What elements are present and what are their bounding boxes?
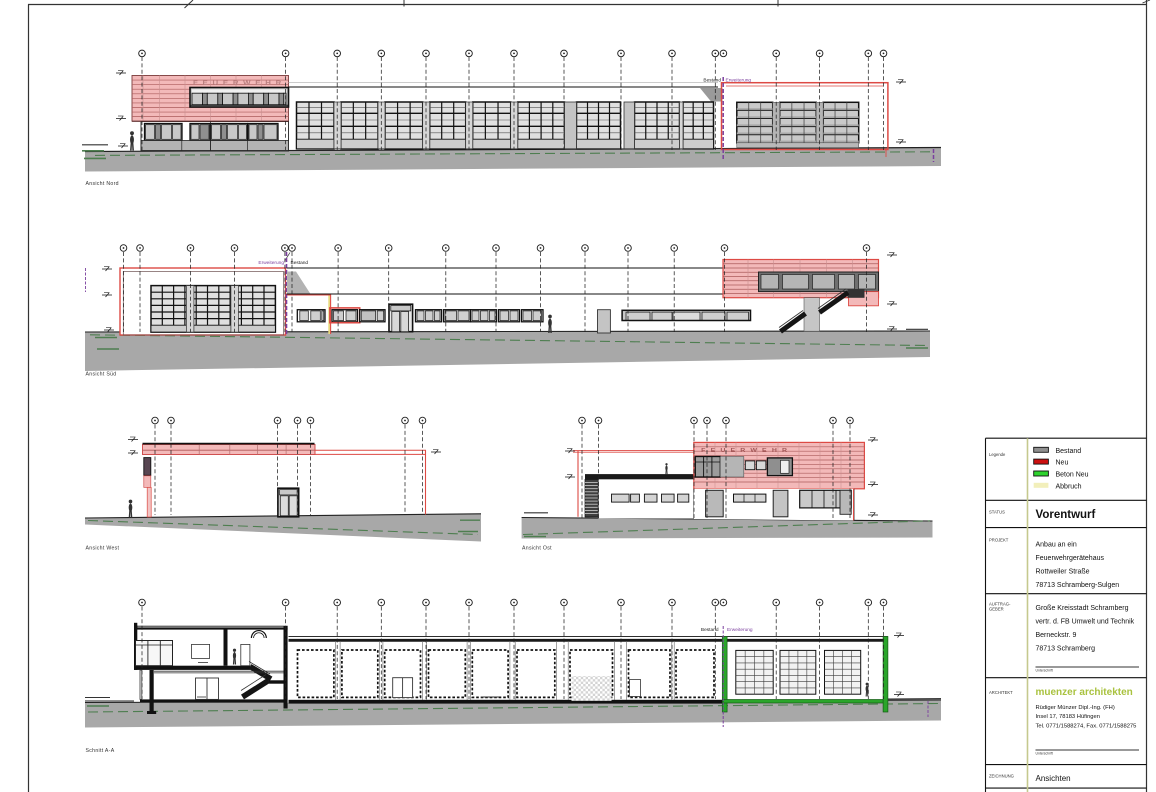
svg-text:Erweiterung: Erweiterung [727, 627, 753, 633]
svg-text:Bestand: Bestand [701, 627, 719, 633]
svg-text:GEBER: GEBER [989, 607, 1004, 612]
svg-text:Bestand: Bestand [291, 260, 309, 266]
svg-text:Tel. 0771/1588274, Fax. 0771/1: Tel. 0771/1588274, Fax. 0771/1588275 [1036, 724, 1137, 730]
svg-text:Erweiterung: Erweiterung [258, 260, 284, 266]
svg-text:Vorentwurf: Vorentwurf [1036, 509, 1096, 521]
svg-text:ZEICHNUNG: ZEICHNUNG [989, 774, 1014, 779]
svg-text:Unterschrift: Unterschrift [1036, 752, 1053, 756]
svg-text:Ansicht West: Ansicht West [86, 546, 120, 552]
svg-text:Ansichten: Ansichten [1036, 774, 1071, 783]
svg-text:78713 Schramberg-Sulgen: 78713 Schramberg-Sulgen [1036, 582, 1120, 589]
svg-text:Rottweiler Straße: Rottweiler Straße [1036, 569, 1090, 576]
svg-text:Rüdiger Münzer Dipl.-Ing. (FH): Rüdiger Münzer Dipl.-Ing. (FH) [1036, 705, 1115, 711]
svg-text:Neu: Neu [1056, 460, 1069, 467]
svg-text:Insel 17, 78183 Hüfingen: Insel 17, 78183 Hüfingen [1036, 714, 1100, 720]
svg-text:Anbau an ein: Anbau an ein [1036, 542, 1077, 549]
svg-text:78713 Schramberg: 78713 Schramberg [1036, 646, 1096, 653]
svg-text:Abbruch: Abbruch [1056, 484, 1082, 491]
svg-text:Ansicht Süd: Ansicht Süd [86, 372, 117, 378]
svg-text:FEUERWEHR: FEUERWEHR [701, 448, 792, 454]
svg-text:vertr. d. FB Umwelt und Techni: vertr. d. FB Umwelt und Technik [1036, 619, 1135, 626]
svg-text:Schnitt A-A: Schnitt A-A [86, 748, 115, 754]
svg-text:Ansicht Ost: Ansicht Ost [522, 546, 552, 552]
svg-text:Erweiterung: Erweiterung [726, 78, 752, 84]
svg-text:ARCHITEKT: ARCHITEKT [989, 690, 1013, 695]
svg-text:Beton Neu: Beton Neu [1056, 472, 1089, 479]
svg-text:Legende: Legende [989, 452, 1006, 457]
svg-text:Große Kreisstadt Schramberg: Große Kreisstadt Schramberg [1036, 605, 1129, 612]
svg-text:STATUS: STATUS [989, 510, 1005, 515]
svg-text:Unterschrift: Unterschrift [1036, 669, 1053, 673]
svg-text:muenzer architekten: muenzer architekten [1036, 687, 1133, 698]
svg-text:Bestand: Bestand [703, 78, 721, 84]
svg-text:PROJEKT: PROJEKT [989, 538, 1009, 543]
svg-text:Berneckstr. 9: Berneckstr. 9 [1036, 632, 1077, 639]
svg-text:FEUERWEHR: FEUERWEHR [193, 80, 286, 87]
svg-text:Feuerwehrgerätehaus: Feuerwehrgerätehaus [1036, 555, 1105, 562]
svg-text:Bestand: Bestand [1056, 448, 1082, 455]
svg-text:Ansicht Nord: Ansicht Nord [86, 181, 119, 187]
